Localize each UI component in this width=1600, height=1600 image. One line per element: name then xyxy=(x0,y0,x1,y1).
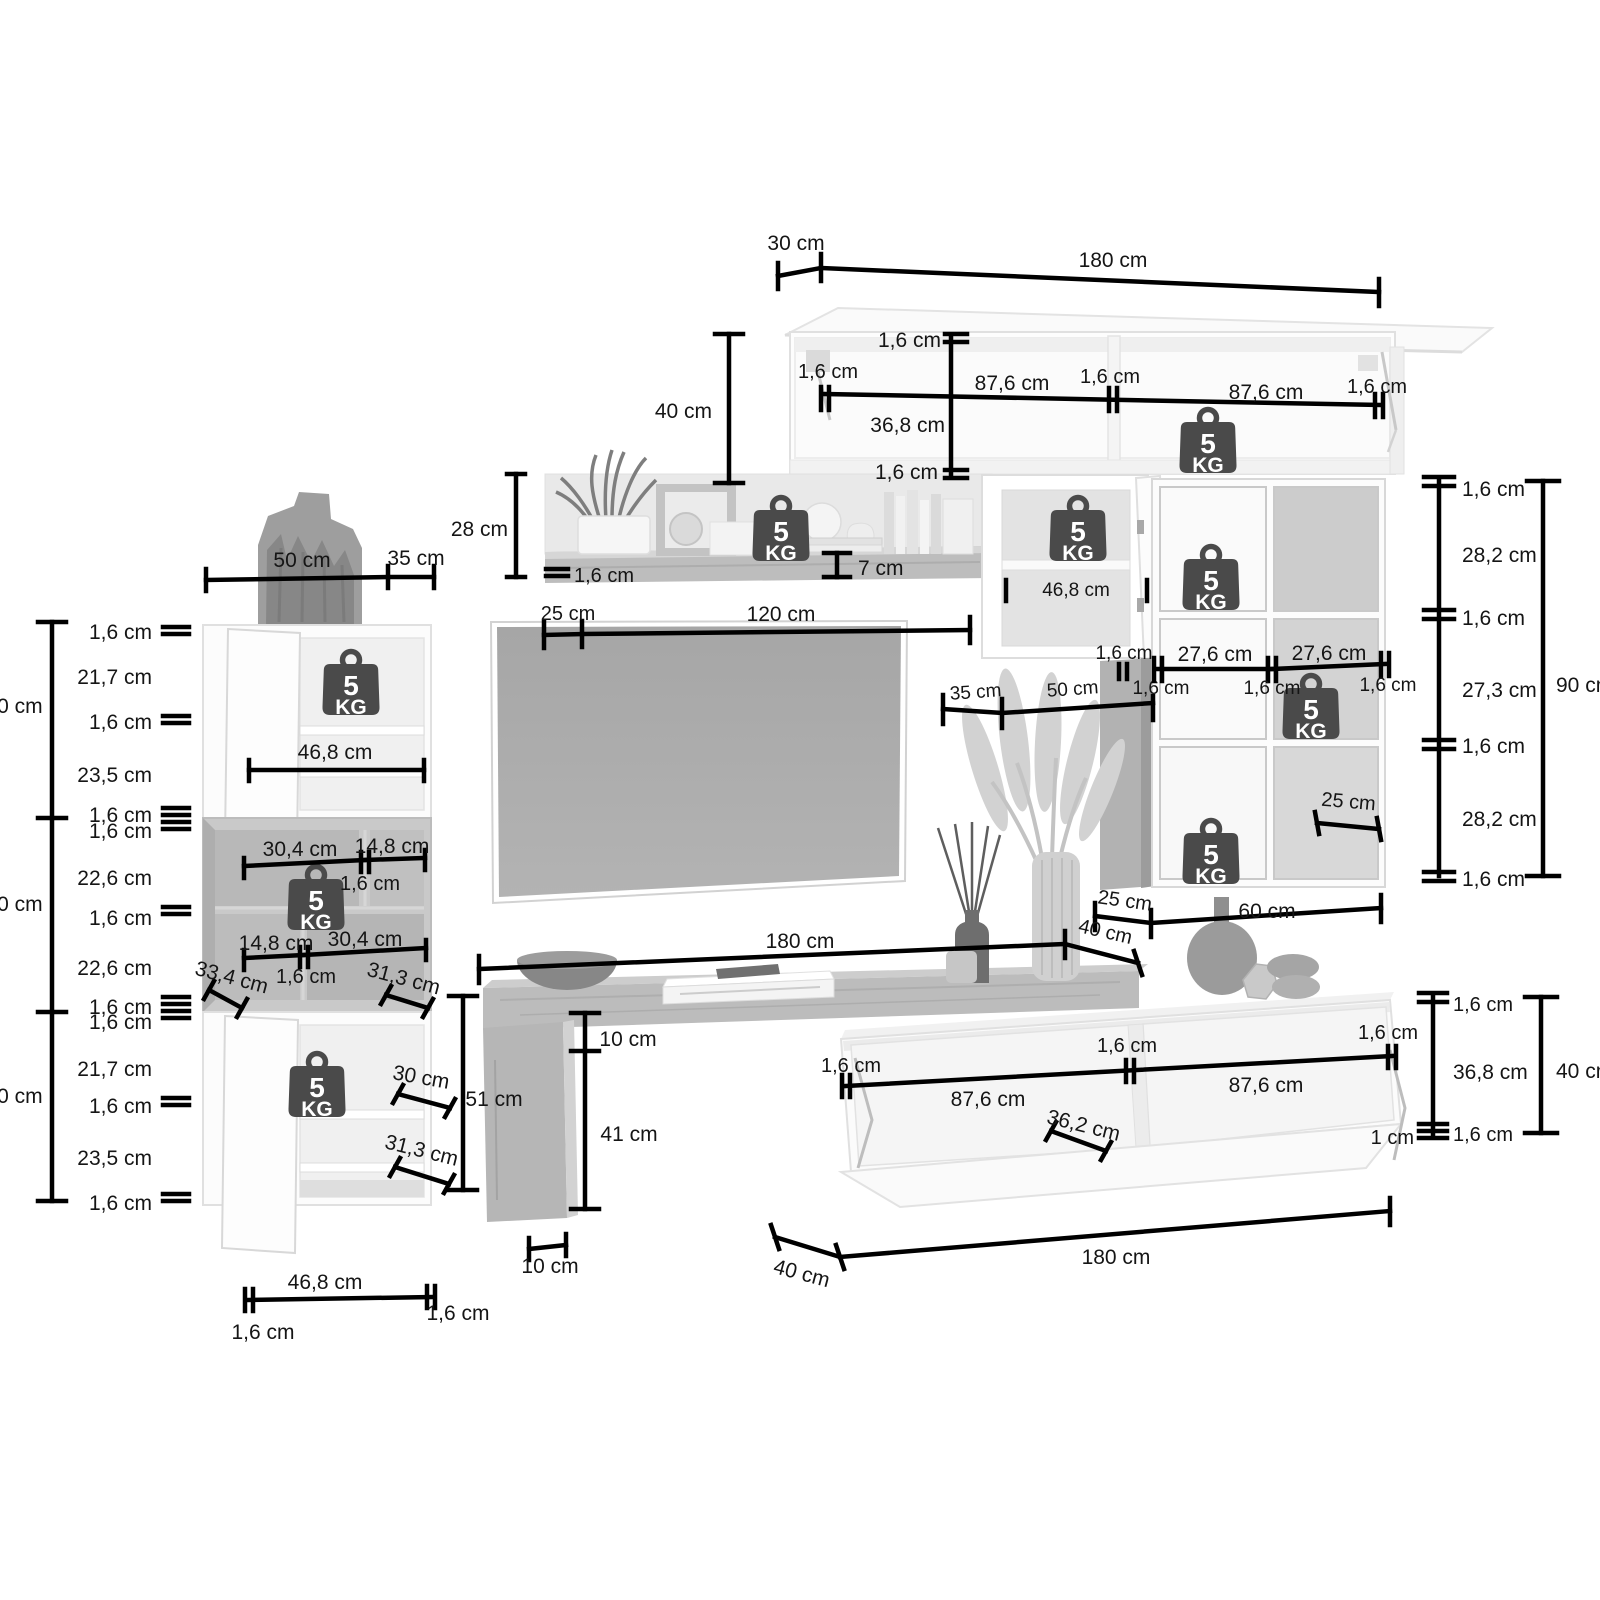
svg-text:1,6 cm: 1,6 cm xyxy=(1243,678,1300,699)
svg-text:36,8 cm: 36,8 cm xyxy=(1453,1061,1528,1084)
svg-text:1,6 cm: 1,6 cm xyxy=(1080,366,1140,388)
svg-text:30,4 cm: 30,4 cm xyxy=(328,928,403,951)
svg-text:22,6 cm: 22,6 cm xyxy=(77,957,152,980)
svg-text:50 cm: 50 cm xyxy=(273,549,330,572)
svg-text:40 cm: 40 cm xyxy=(655,400,712,423)
svg-text:46,8 cm: 46,8 cm xyxy=(1042,580,1110,601)
svg-text:1,6 cm: 1,6 cm xyxy=(89,1095,152,1118)
svg-text:36,8 cm: 36,8 cm xyxy=(870,414,945,437)
svg-text:50 cm: 50 cm xyxy=(1046,677,1099,702)
svg-text:1,6 cm: 1,6 cm xyxy=(1097,1035,1157,1057)
svg-text:1,6 cm: 1,6 cm xyxy=(276,966,336,988)
svg-text:28,2 cm: 28,2 cm xyxy=(1462,544,1537,567)
svg-text:27,6 cm: 27,6 cm xyxy=(1292,642,1367,665)
svg-text:35 cm: 35 cm xyxy=(387,547,444,570)
svg-text:60 cm: 60 cm xyxy=(1238,900,1295,923)
svg-text:1,6 cm: 1,6 cm xyxy=(574,565,634,587)
svg-text:28,2 cm: 28,2 cm xyxy=(1462,808,1537,831)
svg-text:1,6 cm: 1,6 cm xyxy=(1358,1022,1418,1044)
svg-text:120 cm: 120 cm xyxy=(747,603,816,626)
svg-text:1,6 cm: 1,6 cm xyxy=(89,621,152,644)
svg-text:1,6 cm: 1,6 cm xyxy=(1453,1124,1513,1146)
svg-text:87,6 cm: 87,6 cm xyxy=(1229,1074,1304,1097)
svg-text:51 cm: 51 cm xyxy=(465,1088,522,1111)
svg-text:1,6 cm: 1,6 cm xyxy=(89,1011,152,1034)
svg-text:1,6 cm: 1,6 cm xyxy=(821,1055,881,1077)
svg-text:40 cm: 40 cm xyxy=(1556,1060,1600,1083)
svg-text:10 cm: 10 cm xyxy=(521,1255,578,1278)
svg-text:1 cm: 1 cm xyxy=(1371,1127,1414,1149)
svg-text:46,8 cm: 46,8 cm xyxy=(288,1271,363,1294)
svg-text:87,6 cm: 87,6 cm xyxy=(975,372,1050,395)
svg-text:1,6 cm: 1,6 cm xyxy=(1462,868,1525,891)
svg-text:1,6 cm: 1,6 cm xyxy=(878,329,941,352)
svg-text:1,6 cm: 1,6 cm xyxy=(1095,643,1152,664)
svg-text:28 cm: 28 cm xyxy=(451,518,508,541)
svg-text:35 cm: 35 cm xyxy=(949,680,1002,705)
svg-text:21,7 cm: 21,7 cm xyxy=(77,666,152,689)
svg-text:23,5 cm: 23,5 cm xyxy=(77,1147,152,1170)
svg-text:180 cm: 180 cm xyxy=(766,930,835,953)
svg-text:1,6 cm: 1,6 cm xyxy=(340,873,400,895)
svg-text:30 cm: 30 cm xyxy=(767,232,824,255)
svg-text:23,5 cm: 23,5 cm xyxy=(77,764,152,787)
svg-text:1,6 cm: 1,6 cm xyxy=(231,1321,294,1344)
svg-text:1,6 cm: 1,6 cm xyxy=(89,1192,152,1215)
svg-text:41 cm: 41 cm xyxy=(600,1123,657,1146)
svg-text:22,6 cm: 22,6 cm xyxy=(77,867,152,890)
svg-text:21,7 cm: 21,7 cm xyxy=(77,1058,152,1081)
svg-text:7 cm: 7 cm xyxy=(858,557,904,580)
svg-text:1,6 cm: 1,6 cm xyxy=(89,907,152,930)
svg-text:1,6 cm: 1,6 cm xyxy=(1462,478,1525,501)
svg-text:1,6 cm: 1,6 cm xyxy=(89,820,152,843)
svg-text:10 cm: 10 cm xyxy=(599,1028,656,1051)
svg-text:90 cm: 90 cm xyxy=(1556,674,1600,697)
svg-text:1,6 cm: 1,6 cm xyxy=(1462,735,1525,758)
svg-text:27,3 cm: 27,3 cm xyxy=(1462,679,1537,702)
svg-text:1,6 cm: 1,6 cm xyxy=(1347,376,1407,398)
svg-text:30,4 cm: 30,4 cm xyxy=(263,838,338,861)
svg-text:50 cm: 50 cm xyxy=(0,695,43,718)
svg-text:14,8 cm: 14,8 cm xyxy=(355,835,430,858)
svg-text:46,8 cm: 46,8 cm xyxy=(298,741,373,764)
svg-text:180 cm: 180 cm xyxy=(1079,249,1148,272)
svg-text:87,6 cm: 87,6 cm xyxy=(951,1088,1026,1111)
svg-text:1,6 cm: 1,6 cm xyxy=(1359,675,1416,696)
svg-text:27,6 cm: 27,6 cm xyxy=(1178,643,1253,666)
svg-text:1,6 cm: 1,6 cm xyxy=(875,461,938,484)
svg-text:1,6 cm: 1,6 cm xyxy=(89,711,152,734)
svg-text:1,6 cm: 1,6 cm xyxy=(426,1302,489,1325)
svg-text:1,6 cm: 1,6 cm xyxy=(798,361,858,383)
svg-text:25 cm: 25 cm xyxy=(541,603,595,625)
svg-text:50 cm: 50 cm xyxy=(0,1085,43,1108)
svg-text:180 cm: 180 cm xyxy=(1082,1246,1151,1269)
svg-text:14,8 cm: 14,8 cm xyxy=(239,932,314,955)
svg-text:50 cm: 50 cm xyxy=(0,893,43,916)
svg-text:1,6 cm: 1,6 cm xyxy=(1462,607,1525,630)
svg-text:1,6 cm: 1,6 cm xyxy=(1453,994,1513,1016)
svg-text:87,6 cm: 87,6 cm xyxy=(1229,381,1304,404)
